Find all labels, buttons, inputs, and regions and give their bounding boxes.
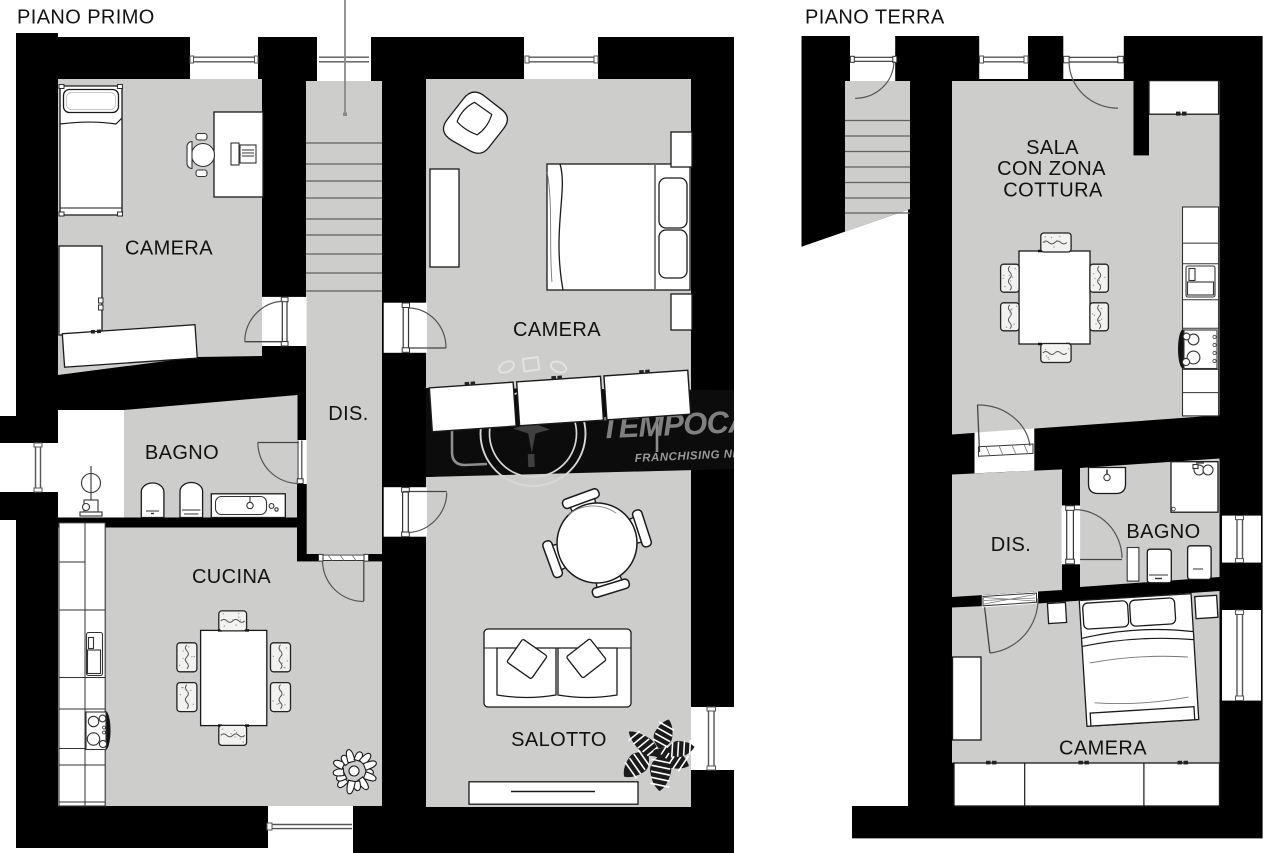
svg-text:PIANO TERRA: PIANO TERRA [805, 7, 945, 29]
svg-text:PIANO PRIMO: PIANO PRIMO [17, 7, 155, 29]
svg-text:CAMERA: CAMERA [125, 238, 213, 260]
svg-text:CAMERA: CAMERA [513, 319, 601, 341]
svg-text:SALA: SALA [1026, 137, 1079, 159]
svg-text:COTTURA: COTTURA [1003, 180, 1103, 202]
svg-text:DIS.: DIS. [991, 534, 1032, 556]
svg-text:CAMERA: CAMERA [1059, 738, 1147, 760]
svg-text:CON ZONA: CON ZONA [997, 158, 1106, 180]
svg-text:BAGNO: BAGNO [1126, 521, 1200, 543]
svg-text:CUCINA: CUCINA [192, 566, 271, 588]
svg-text:DIS.: DIS. [328, 403, 369, 425]
svg-text:SALOTTO: SALOTTO [511, 729, 607, 751]
svg-text:BAGNO: BAGNO [145, 442, 219, 464]
